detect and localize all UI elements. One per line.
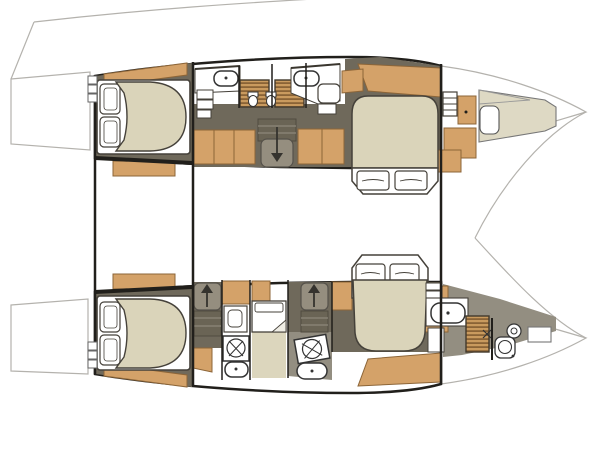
top-head2-locker xyxy=(318,104,336,114)
top-head1-drawer-2 xyxy=(197,100,213,109)
bottom-mid-mattress xyxy=(353,280,427,351)
bow-toilet-flush-dot xyxy=(512,355,515,358)
top-corridor-cabinet-3 xyxy=(234,130,255,164)
stern-platform-bottom xyxy=(11,299,88,374)
top-fwd-pillow-2 xyxy=(395,171,427,190)
top-corridor-cabinet-5 xyxy=(322,129,344,164)
top-fwd-tan-a xyxy=(458,96,476,124)
floorplan-page xyxy=(0,0,600,450)
forepeak-hatch xyxy=(480,106,499,134)
bottom-head2-basin-drain xyxy=(311,370,314,373)
top-corridor-cabinet-4 xyxy=(298,129,322,164)
bottom-tan-corner xyxy=(193,348,212,372)
transom-steps-top xyxy=(88,76,97,102)
top-wardrobe xyxy=(342,69,363,93)
bottom-aft-mattress xyxy=(116,299,186,368)
bottom-single-cabinet xyxy=(252,281,270,301)
bow-head-drawer-2 xyxy=(426,291,442,298)
floorplan-shapes xyxy=(11,0,586,393)
bottom-head1-basin-drain xyxy=(235,368,238,371)
platform-link-line xyxy=(11,22,34,79)
top-toilet-2-bowl xyxy=(267,96,276,107)
top-fwd-mattress xyxy=(352,96,438,168)
top-head1-basin-drain xyxy=(225,77,228,80)
bow-porthole-outer xyxy=(507,324,521,338)
bow-shelf xyxy=(528,327,551,342)
top-fwd-pillow-1 xyxy=(357,171,389,190)
bottom-single-floor xyxy=(252,332,286,378)
top-corridor-cabinet-2 xyxy=(214,130,234,164)
bow-head-drawer-1 xyxy=(426,283,442,290)
gunwale-line-top xyxy=(34,0,332,22)
bottom-mid-tan-left xyxy=(332,282,352,310)
bottom-stairs2-lower xyxy=(301,311,328,332)
top-head2-seat xyxy=(318,84,340,103)
bow-head-basin-drain xyxy=(446,311,449,314)
bottom-head1-cabinet xyxy=(222,281,250,304)
top-aft-mattress xyxy=(116,82,186,151)
bow-shower-grate xyxy=(466,316,489,352)
stern-platform-top xyxy=(11,72,90,150)
top-head1-drawer-3 xyxy=(197,110,211,118)
top-fwd-tan-dot xyxy=(465,111,468,114)
transom-steps-bottom xyxy=(88,342,97,368)
top-head1-drawer-1 xyxy=(197,90,213,99)
bottom-stairs1-lower xyxy=(194,311,221,336)
top-corridor-cabinet-1 xyxy=(194,130,214,164)
bottom-single-pillow xyxy=(255,303,283,312)
top-toilet-1-bowl xyxy=(249,96,258,107)
floorplan-svg xyxy=(0,0,600,450)
